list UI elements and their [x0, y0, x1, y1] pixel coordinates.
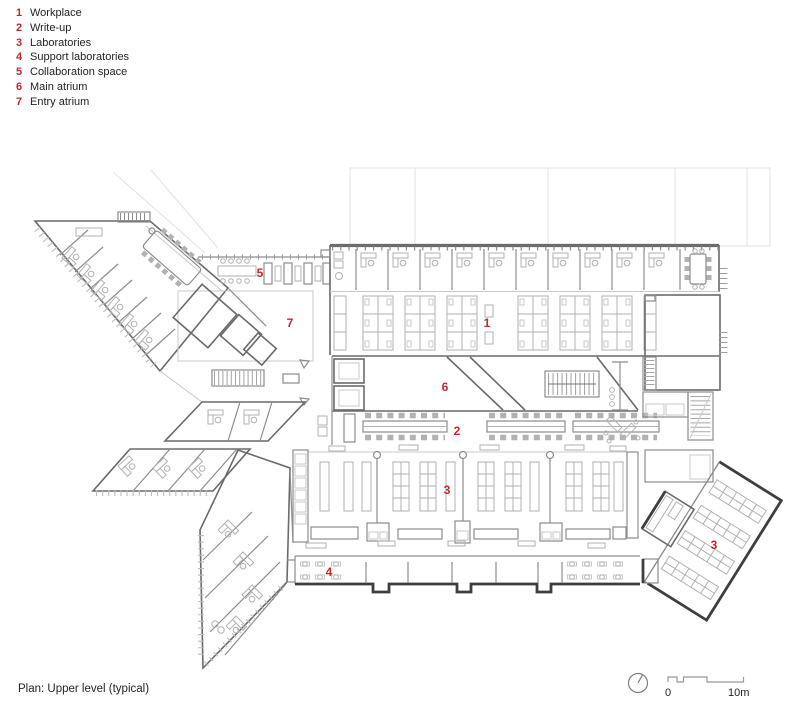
- plan-label-laboratories-east: 3: [711, 538, 718, 552]
- northwest-wing: [35, 212, 299, 402]
- entry-atrium: [173, 284, 313, 405]
- plan-caption: Plan: Upper level (typical): [18, 683, 149, 695]
- plan-label-entry-atrium: 7: [287, 316, 294, 330]
- scale-bar: 0 10m: [665, 677, 749, 699]
- floor-plan-page: 1Workplace 2Write-up 3Laboratories 4Supp…: [0, 0, 800, 727]
- meeting-room: [687, 249, 709, 289]
- conference-table: [140, 227, 205, 289]
- plan-label-laboratories: 3: [444, 483, 451, 497]
- workplace-area: [334, 296, 656, 350]
- scale-start-label: 0: [665, 687, 671, 699]
- scale-end-label: 10m: [728, 687, 749, 699]
- support-laboratories: [295, 541, 640, 592]
- plan-label-collaboration-space: 5: [257, 266, 264, 280]
- plan-label-support-laboratories: 4: [326, 565, 333, 579]
- plan-label-write-up: 2: [454, 424, 461, 438]
- write-up-area: [318, 414, 659, 443]
- southwest-wings: [93, 402, 305, 668]
- context-lines: [113, 168, 770, 253]
- plan-label-workplace: 1: [484, 316, 491, 330]
- north-arrow-icon: [629, 674, 648, 693]
- plan-label-main-atrium: 6: [442, 380, 449, 394]
- floor-plan-drawing: 1 2 3 4 5 6 7 3 0 10m: [0, 0, 800, 727]
- laboratories: [293, 445, 638, 543]
- east-core: [643, 268, 724, 482]
